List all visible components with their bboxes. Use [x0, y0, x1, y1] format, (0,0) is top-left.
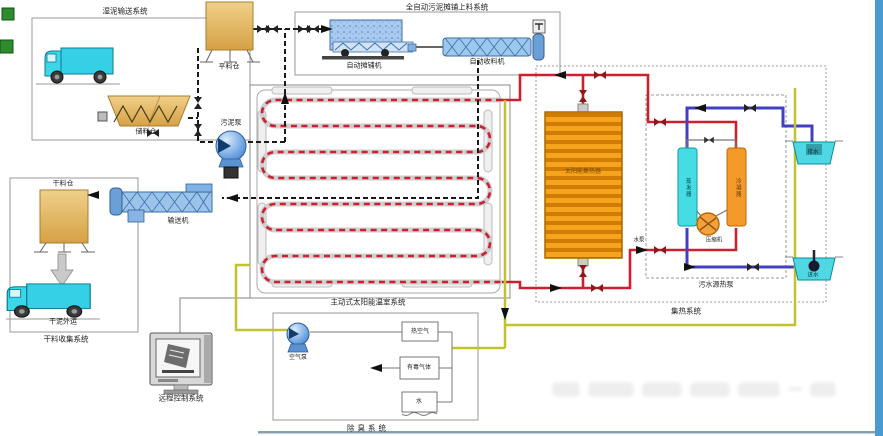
label-water-pump: 水泵	[633, 238, 644, 244]
compressor-symbol	[697, 213, 719, 235]
label-heat-collect-system: 集热系统	[671, 307, 701, 315]
label-drain-water: 排水	[807, 150, 818, 156]
label-conveyor: 输送机	[168, 218, 189, 225]
label-condenser: 冷凝器	[734, 178, 740, 198]
sludge-pump-symbol	[216, 131, 246, 178]
label-air-pump: 空气泵	[289, 355, 307, 361]
label-dry-collect-system: 干料收集系统	[44, 335, 89, 343]
label-storage-hopper: 储料仓	[136, 129, 157, 136]
label-inlet-water: 进水	[807, 273, 818, 279]
label-auto-collector: 自动收料机	[470, 59, 505, 66]
label-dry-out: 干泥外运	[49, 319, 77, 326]
storage-hopper-symbol	[98, 96, 190, 126]
greenhouse-heating-coil	[262, 100, 502, 282]
label-greenhouse-system: 主动式太阳能温室系统	[329, 298, 408, 306]
label-dry-silo: 干料仓	[53, 181, 74, 188]
dry-silo-symbol	[34, 190, 95, 286]
label-sewage-heat-pump: 污水源热泵	[699, 282, 734, 289]
right-edge-stripe	[875, 0, 883, 436]
label-auto-spreader: 自动摊铺机	[347, 63, 382, 70]
label-sludge-pump: 污泥泵	[221, 120, 242, 127]
diagram-graphics	[0, 0, 883, 436]
label-water: 水	[416, 399, 422, 405]
label-hot-air: 热空气	[411, 329, 429, 335]
radiator-symbol	[545, 104, 622, 266]
wet-sludge-truck	[45, 48, 113, 83]
watermark	[548, 372, 853, 406]
label-buffer-silo: 平料仓	[219, 64, 240, 71]
control-lines	[180, 298, 250, 333]
greenhouse-box	[250, 85, 510, 298]
label-remote-control-system: 远程控制系统	[159, 394, 204, 402]
label-evaporator: 蒸发器	[684, 178, 690, 198]
label-deodorization-system: 除臭系统	[347, 424, 389, 432]
label-compressor: 压缩机	[706, 238, 723, 244]
air-pump-symbol	[287, 323, 309, 352]
label-solar-collector: 太阳能集热器	[565, 169, 601, 175]
legend-chips	[0, 8, 14, 53]
monitor-symbol	[150, 333, 212, 394]
buffer-silo-symbol	[200, 2, 260, 62]
greenhouse-inner-wall	[257, 90, 500, 293]
discharge-arrow	[51, 254, 73, 286]
auto-collector-symbol	[443, 20, 545, 60]
conveyor-symbol	[110, 184, 212, 222]
dry-sludge-truck	[7, 284, 90, 317]
diagram-canvas: 湿泥输送系统 全自动污泥摊铺上料系统 主动式太阳能温室系统 干料收集系统 远程控…	[0, 0, 883, 436]
label-auto-spread-system: 全自动污泥摊铺上料系统	[404, 3, 491, 11]
label-toxic-gas: 有毒气体	[407, 365, 431, 371]
auto-spreader-symbol	[322, 20, 443, 60]
label-wet-transport-system: 湿泥输送系统	[101, 7, 150, 15]
